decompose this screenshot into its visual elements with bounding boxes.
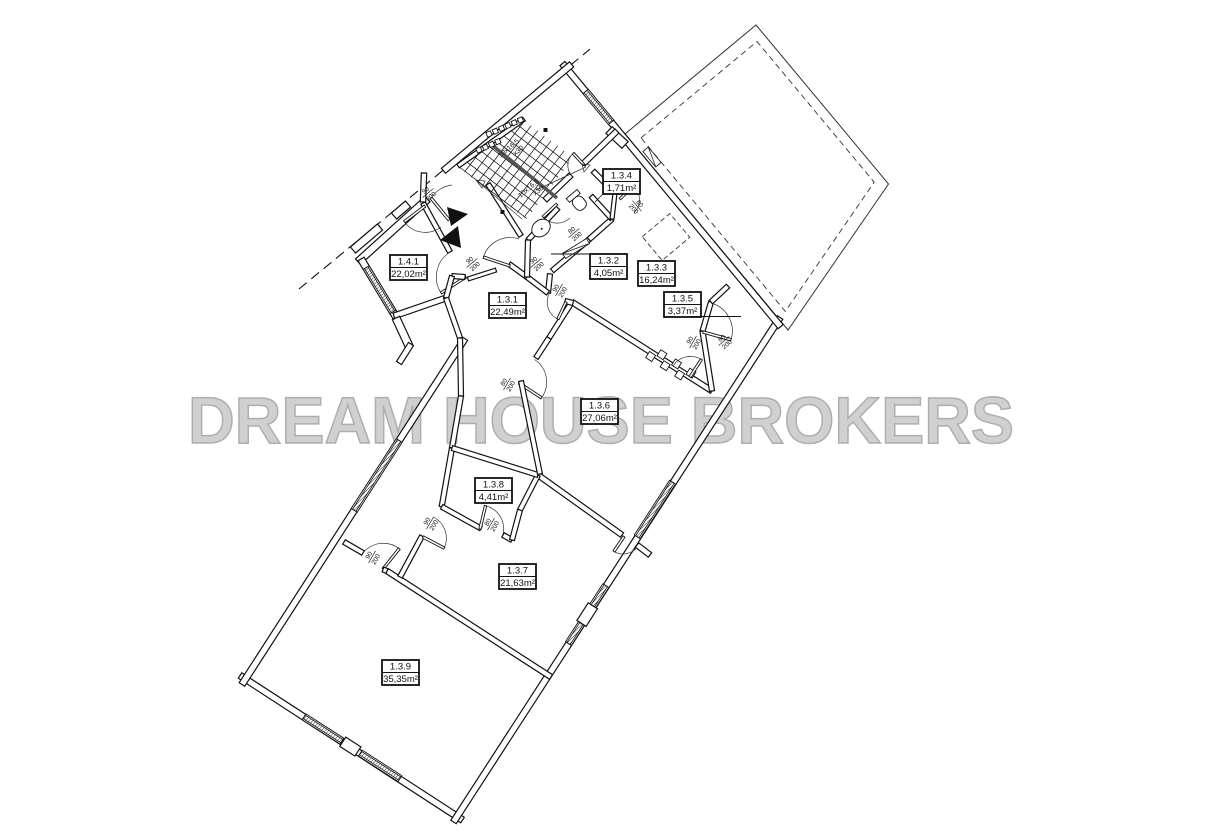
svg-text:1.3.7: 1.3.7: [507, 566, 528, 577]
svg-text:1.3.6: 1.3.6: [589, 401, 610, 412]
svg-text:1.3.4: 1.3.4: [611, 171, 632, 182]
svg-text:1.3.3: 1.3.3: [646, 263, 667, 274]
svg-text:22,02m²: 22,02m²: [391, 269, 426, 280]
svg-text:1.3.5: 1.3.5: [672, 294, 693, 305]
svg-text:21,63m²: 21,63m²: [500, 578, 535, 589]
svg-text:4,05m²: 4,05m²: [594, 268, 624, 279]
svg-text:1.3.9: 1.3.9: [390, 662, 411, 673]
svg-text:16,24m²: 16,24m²: [639, 275, 674, 286]
svg-text:1,71m²: 1,71m²: [607, 183, 637, 194]
svg-text:27,06m²: 27,06m²: [582, 413, 617, 424]
svg-text:35,35m²: 35,35m²: [383, 674, 418, 685]
svg-text:1.4.1: 1.4.1: [398, 257, 419, 268]
svg-text:1.3.2: 1.3.2: [598, 256, 619, 267]
svg-text:4,41m²: 4,41m²: [479, 492, 509, 503]
svg-text:1.3.1: 1.3.1: [497, 295, 518, 306]
svg-text:3,37m²: 3,37m²: [668, 306, 698, 317]
svg-text:22,49m²: 22,49m²: [490, 307, 525, 318]
svg-text:1.3.8: 1.3.8: [483, 480, 504, 491]
